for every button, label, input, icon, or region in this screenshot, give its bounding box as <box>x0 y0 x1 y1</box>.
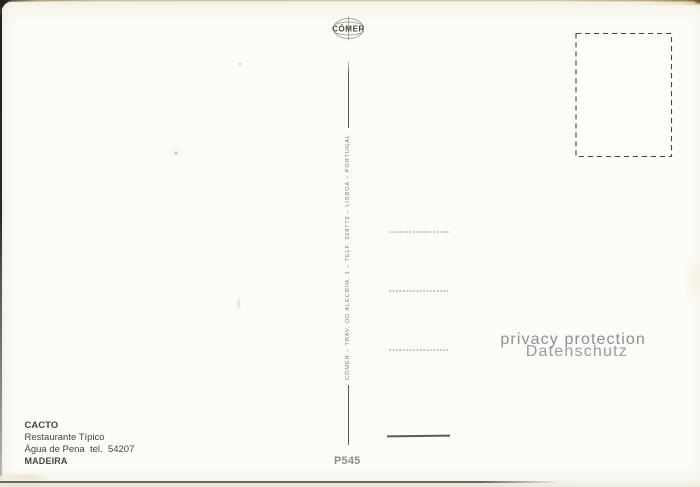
svg-text:CÓMER: CÓMER <box>332 25 365 34</box>
